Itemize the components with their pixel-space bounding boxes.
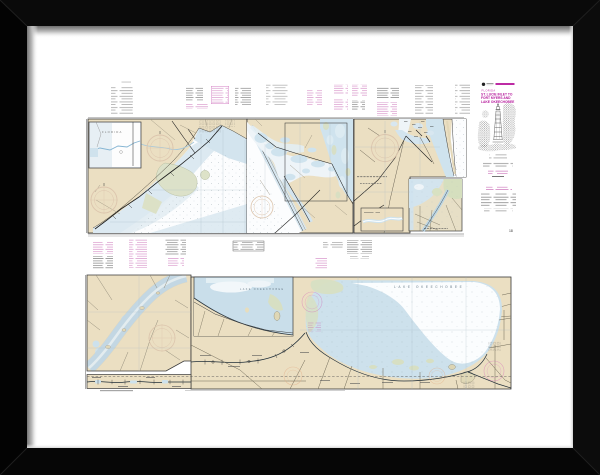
svg-text:LAKE OKEECHOBEE: LAKE OKEECHOBEE — [481, 100, 515, 104]
svg-text:LAKE OKEECHOBEE: LAKE OKEECHOBEE — [394, 285, 464, 289]
svg-text:LAKE OKEECHOBEE: LAKE OKEECHOBEE — [240, 288, 285, 291]
svg-text:FLORIDA: FLORIDA — [102, 130, 123, 134]
svg-text:18: 18 — [509, 229, 513, 233]
